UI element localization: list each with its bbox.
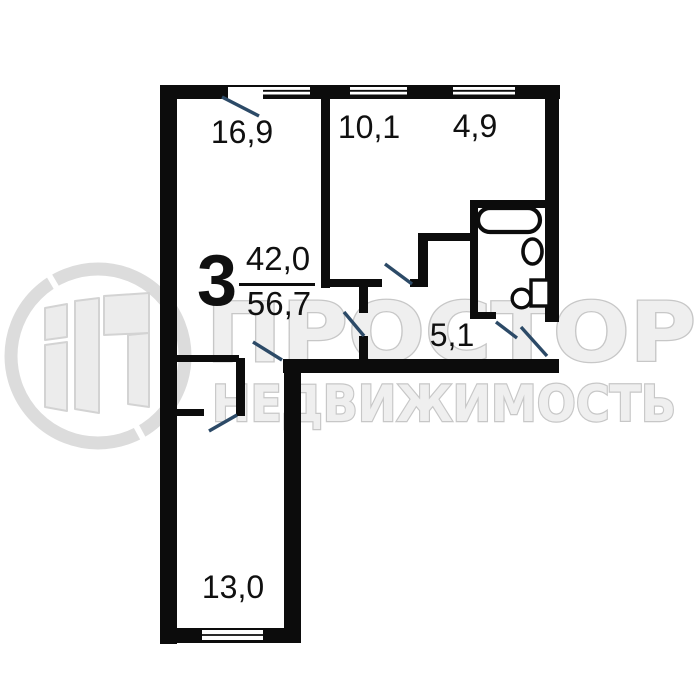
room-area-label: 4,9 [453, 108, 497, 144]
rooms-count-label: 3 [197, 241, 237, 321]
toilet-bowl-icon [512, 289, 531, 308]
apartment-summary: 3 42,0 56,7 [197, 240, 315, 322]
wall-room2-bottom-left [321, 279, 382, 287]
wall-hall-divider-lower [359, 336, 368, 360]
wall-outer-left [160, 85, 177, 644]
room-area-label: 5,1 [430, 317, 474, 353]
sink-icon [523, 239, 542, 264]
wall-room-divider [321, 95, 330, 288]
wall-corridor-horizontal [418, 233, 475, 241]
watermark: ПРОСТОР НЕДВИЖИМОСТЬ [11, 269, 696, 444]
room2-door-swing [385, 264, 412, 284]
wall-hall-divider-upper [359, 287, 368, 313]
watermark-subtitle-text: НЕДВИЖИМОСТЬ [212, 375, 676, 433]
brand-logo-panel [45, 342, 67, 411]
floor-plan-image: ПРОСТОР НЕДВИЖИМОСТЬ [0, 0, 700, 700]
wall-closet-bottom [177, 409, 204, 416]
wall-room1-bottom [176, 355, 239, 362]
wall-corridor-vertical [418, 233, 428, 287]
brand-logo-panel [128, 333, 149, 407]
balcony-door-opening [228, 87, 263, 99]
room-area-label: 13,0 [202, 569, 264, 605]
floor-plan-canvas: ПРОСТОР НЕДВИЖИМОСТЬ [0, 0, 700, 700]
brand-logo-panel [45, 304, 67, 340]
room-area-label: 10,1 [338, 109, 400, 145]
brand-logo [11, 269, 185, 444]
brand-logo-panel [75, 298, 99, 413]
brand-logo-panel [104, 293, 149, 335]
toilet-tank-icon [531, 280, 549, 306]
room-area-label: 16,9 [211, 114, 273, 150]
living-area-label: 42,0 [246, 240, 310, 277]
wall-mid-bottom [283, 359, 559, 373]
bathtub-icon [478, 208, 540, 232]
wall-closet-vertical [236, 358, 245, 416]
wall-lower-right [284, 373, 301, 643]
total-area-label: 56,7 [247, 285, 311, 322]
